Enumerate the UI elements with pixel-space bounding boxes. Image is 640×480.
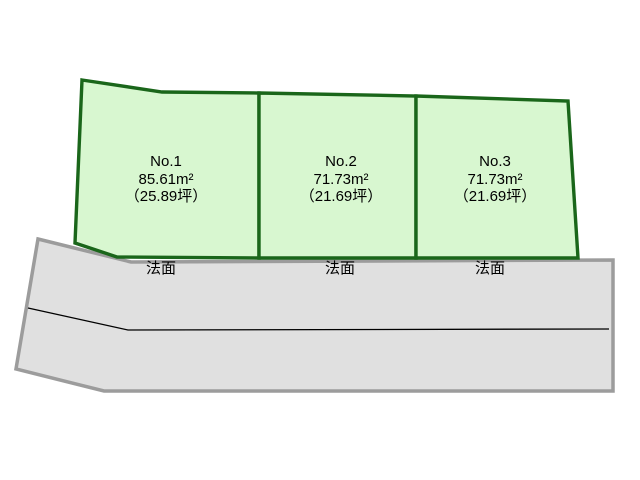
plot-3-label: No.3 71.73m² （21.69坪） (454, 153, 537, 206)
slope-label-1: 法面 (146, 261, 176, 276)
plot-1-number: No.1 (125, 153, 208, 171)
plot-1-area-m2: 85.61m² (125, 171, 208, 189)
plot-3-area-m2: 71.73m² (454, 171, 537, 189)
plot-2-area-m2: 71.73m² (300, 171, 383, 189)
slope-label-2: 法面 (325, 261, 355, 276)
plot-3-number: No.3 (454, 153, 537, 171)
plot-3-area-tsubo: （21.69坪） (454, 188, 537, 206)
lot-layout-diagram: No.1 85.61m² （25.89坪） No.2 71.73m² （21.6… (0, 0, 640, 480)
plot-1-area-tsubo: （25.89坪） (125, 188, 208, 206)
plot-2-area-tsubo: （21.69坪） (300, 188, 383, 206)
plot-2-label: No.2 71.73m² （21.69坪） (300, 153, 383, 206)
plot-2-number: No.2 (300, 153, 383, 171)
plot-1-label: No.1 85.61m² （25.89坪） (125, 153, 208, 206)
diagram-shapes (0, 0, 640, 480)
slope-label-3: 法面 (475, 261, 505, 276)
road-area (16, 239, 613, 391)
